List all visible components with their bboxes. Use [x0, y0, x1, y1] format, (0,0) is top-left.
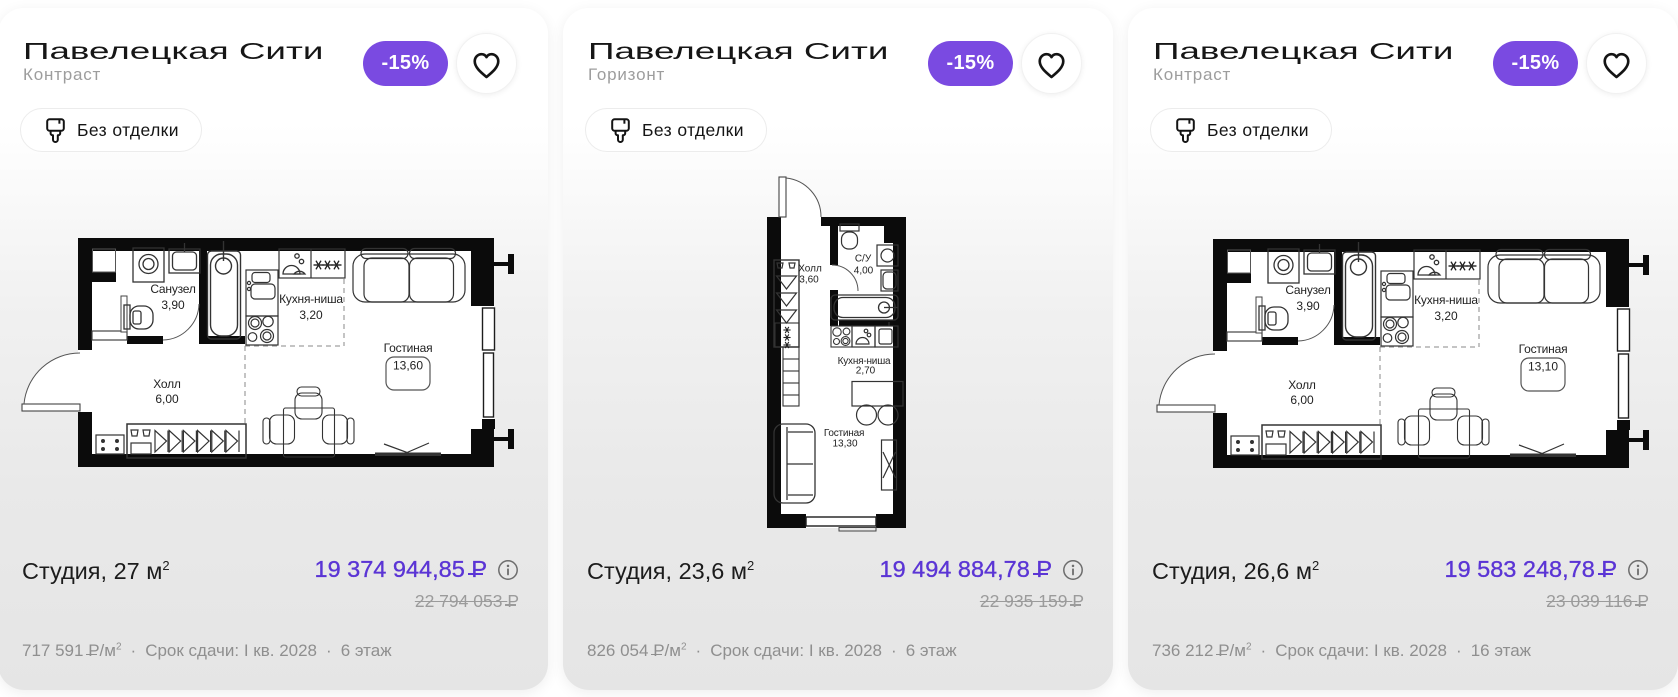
svg-text:2,70: 2,70 — [856, 366, 876, 377]
svg-text:6,00: 6,00 — [1290, 393, 1314, 407]
svg-text:Кухня-ниша: Кухня-ниша — [1414, 293, 1478, 307]
svg-text:13,60: 13,60 — [393, 359, 423, 373]
svg-text:Холл: Холл — [798, 264, 822, 275]
svg-text:Холл: Холл — [1288, 378, 1316, 392]
svg-text:3,20: 3,20 — [299, 308, 323, 322]
svg-text:3,90: 3,90 — [1296, 299, 1320, 313]
svg-text:3,90: 3,90 — [161, 298, 185, 312]
svg-text:3,20: 3,20 — [1434, 309, 1458, 323]
svg-text:Гостиная: Гостиная — [1519, 342, 1568, 356]
svg-text:Гостиная: Гостиная — [384, 341, 433, 355]
svg-text:6,00: 6,00 — [155, 392, 179, 406]
svg-text:4,00: 4,00 — [854, 266, 874, 277]
svg-text:Гостиная: Гостиная — [824, 428, 864, 439]
svg-text:Санузел: Санузел — [1285, 283, 1331, 297]
svg-text:С/У: С/У — [855, 254, 872, 265]
svg-text:Кухня-ниша: Кухня-ниша — [279, 292, 343, 306]
svg-text:Холл: Холл — [153, 377, 181, 391]
svg-text:3,60: 3,60 — [799, 275, 819, 286]
svg-text:13,10: 13,10 — [1528, 360, 1558, 374]
svg-text:Санузел: Санузел — [150, 282, 196, 296]
svg-text:13,30: 13,30 — [832, 439, 857, 450]
